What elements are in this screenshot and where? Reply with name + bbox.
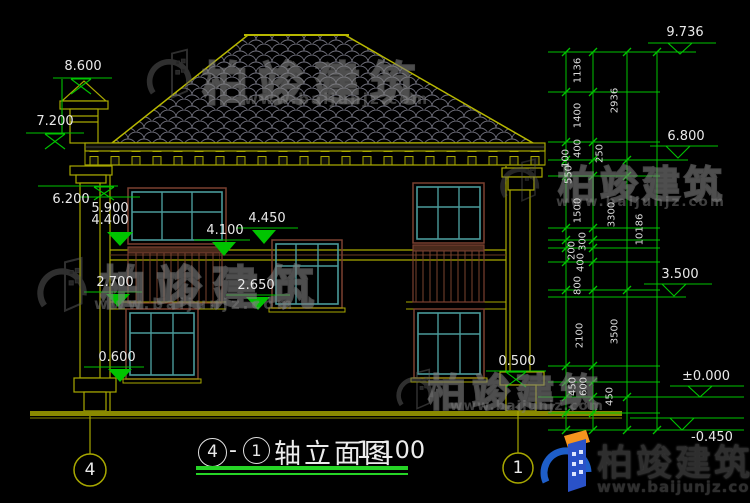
- title-underline-thin: [196, 473, 408, 475]
- title-underline-thick: [196, 466, 408, 470]
- elevation-label: 8.600: [53, 60, 113, 74]
- eave-cornice: [85, 143, 545, 165]
- watermark-logo-icon: [496, 156, 548, 208]
- axis-bubble-right: 1: [508, 458, 528, 478]
- elevation-label: 6.800: [651, 130, 721, 144]
- dim-label: 2936: [610, 81, 621, 121]
- elevation-label: 9.736: [650, 26, 720, 40]
- elevation-label: 0.600: [87, 351, 147, 365]
- dim-label: 1136: [573, 51, 584, 91]
- drawing-scale: 1:100: [356, 436, 425, 464]
- dim-label: 2100: [575, 316, 586, 356]
- dim-label: 3500: [610, 312, 621, 352]
- dim-label: 450: [605, 377, 616, 417]
- dim-label: 3300: [607, 195, 618, 235]
- dim-label: 600: [579, 367, 590, 407]
- title-axis-circle-to: 1: [243, 437, 270, 464]
- dim-label: 450: [568, 367, 579, 407]
- chimney: [60, 81, 108, 143]
- window-upper-right: [413, 183, 484, 243]
- elevation-label: 2.650: [226, 279, 286, 293]
- elevation-label: 4.100: [195, 224, 255, 238]
- watermark-url: www.baijunjz.com: [94, 295, 295, 313]
- axis-bubble-left: 4: [80, 460, 100, 480]
- title-separator: -: [229, 438, 237, 463]
- dim-label-total: 10186: [635, 208, 646, 252]
- dim-label: 550: [564, 155, 575, 195]
- watermark-logo-icon: [140, 46, 204, 106]
- elevation-drawing-canvas: 柏竣建筑 www.baijunjz.com 柏竣建筑 www.baijunjz.…: [0, 0, 750, 503]
- window-lower-left: [123, 309, 201, 383]
- elevation-label: 7.200: [25, 115, 85, 129]
- elevation-label: ±0.000: [671, 370, 741, 384]
- elevation-label: 0.500: [487, 355, 547, 369]
- brand-logo-url: www.baijunjz.com: [597, 478, 750, 496]
- elevation-label: 3.500: [645, 268, 715, 282]
- dim-label: 800: [573, 266, 584, 306]
- title-axis-circle-from: 4: [198, 438, 227, 467]
- watermark-url: www.baijunjz.com: [244, 90, 429, 108]
- railing-upper-right: [413, 245, 484, 302]
- elevation-label: 2.700: [85, 276, 145, 290]
- dim-label: 250: [595, 134, 606, 174]
- brand-logo-icon: [538, 430, 592, 496]
- elevation-label: 4.400: [80, 214, 140, 228]
